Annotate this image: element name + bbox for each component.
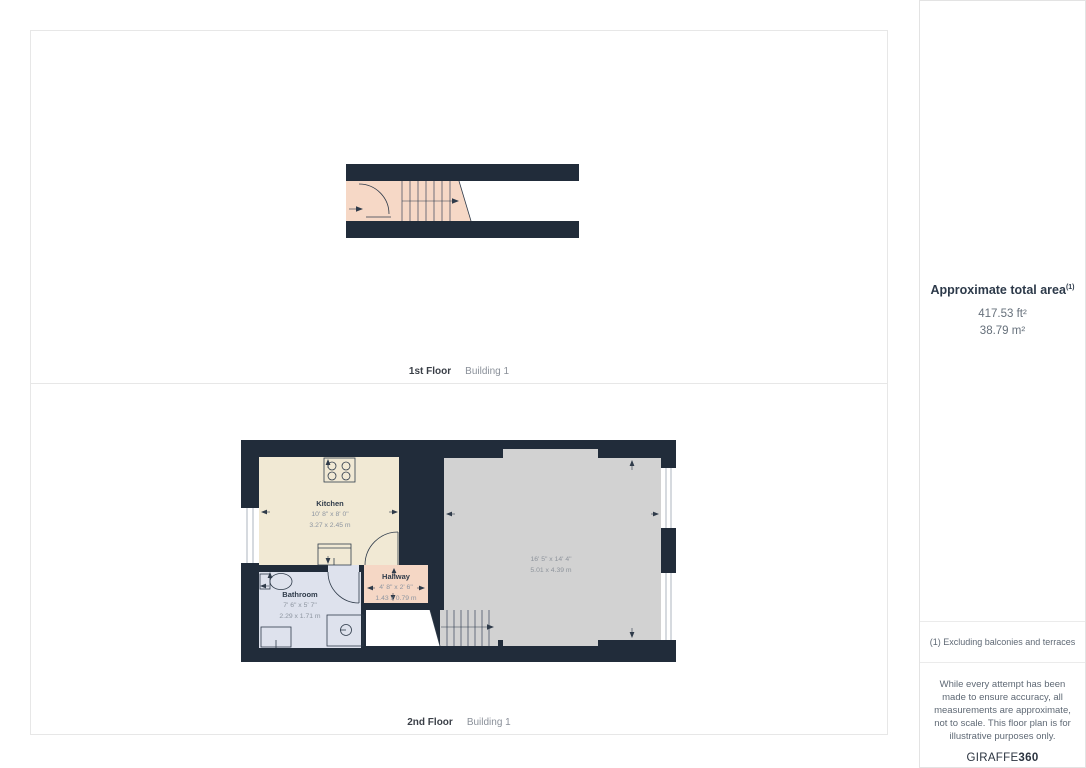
room-name: Bathroom (279, 589, 320, 600)
floor1-plan-drawing (346, 164, 579, 238)
room-dims-ft: 10' 8" x 8' 0" (309, 509, 350, 520)
panel-floor1: 1st Floor Building 1 (30, 30, 888, 384)
giraffe360-logo: GIRAFFE360 (932, 752, 1073, 764)
room-dims-m: 1.43 x 0.79 m (375, 593, 416, 604)
bathroom-label: Bathroom 7' 6" x 5' 7" 2.29 x 1.71 m (279, 589, 320, 622)
floor1-caption: 1st Floor Building 1 (31, 366, 887, 377)
total-area-footnote-marker: (1) (1066, 283, 1075, 290)
logo-text: GIRAFFE (966, 752, 1018, 764)
window (241, 508, 259, 563)
floor1-plan (346, 164, 579, 238)
room-dims-m: 2.29 x 1.71 m (279, 611, 320, 622)
room-dims-ft: 4' 8" x 2' 6" (375, 582, 416, 593)
kitchen-label: Kitchen 10' 8" x 8' 0" 3.27 x 2.45 m (309, 498, 350, 531)
window (661, 468, 676, 528)
logo-suffix: 360 (1018, 752, 1038, 764)
info-sidebar: Approximate total area(1) 417.53 ft² 38.… (919, 0, 1086, 768)
window (661, 573, 676, 640)
disclaimer-section: While every attempt has been made to ens… (920, 662, 1085, 767)
living-room-label: 16' 5" x 14' 4" 5.01 x 4.39 m (530, 554, 571, 576)
total-area-ft: 417.53 ft² (978, 306, 1027, 323)
total-area-section: Approximate total area(1) 417.53 ft² 38.… (920, 1, 1085, 621)
floor2-label: 2nd Floor (407, 717, 453, 728)
floor2-building-label: Building 1 (467, 717, 511, 728)
disclaimer-text: While every attempt has been made to ens… (932, 678, 1073, 743)
floor1-building-label: Building 1 (465, 366, 509, 377)
panel-floor2: Kitchen 10' 8" x 8' 0" 3.27 x 2.45 m Bat… (30, 384, 888, 735)
room-dims-ft: 7' 6" x 5' 7" (279, 600, 320, 611)
floor2-plan: Kitchen 10' 8" x 8' 0" 3.27 x 2.45 m Bat… (241, 440, 676, 662)
staircase (366, 610, 494, 646)
room-name: Kitchen (309, 498, 350, 509)
room-dims-m: 5.01 x 4.39 m (530, 565, 571, 576)
room-dims-m: 3.27 x 2.45 m (309, 520, 350, 531)
total-area-title-text: Approximate total area (930, 283, 1065, 297)
total-area-m: 38.79 m² (980, 323, 1025, 340)
floor2-caption: 2nd Floor Building 1 (31, 717, 887, 728)
floor2-plan-drawing (241, 440, 676, 662)
floorplan-page: 1st Floor Building 1 (0, 0, 1086, 768)
footnote: (1) Excluding balconies and terraces (920, 621, 1085, 662)
room-name: Hallway (375, 571, 416, 582)
floor1-label: 1st Floor (409, 366, 451, 377)
room-dims-ft: 16' 5" x 14' 4" (530, 554, 571, 565)
hallway-label: Hallway 4' 8" x 2' 6" 1.43 x 0.79 m (375, 571, 416, 604)
total-area-title: Approximate total area(1) (930, 283, 1074, 297)
